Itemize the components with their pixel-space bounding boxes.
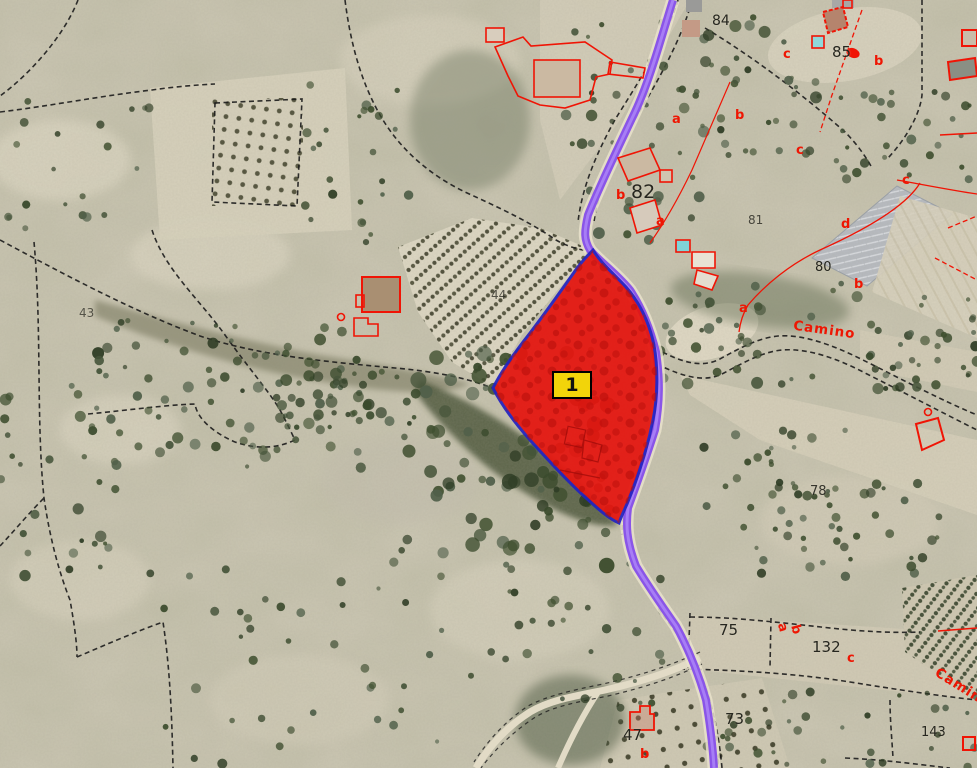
selected-parcel-marker[interactable]: 1: [552, 371, 592, 399]
selected-parcel-number: 1: [565, 374, 578, 396]
map-viewport: 8485828180444378751327347143cbabcbacdbac…: [0, 0, 977, 768]
aerial-map: [0, 0, 977, 768]
